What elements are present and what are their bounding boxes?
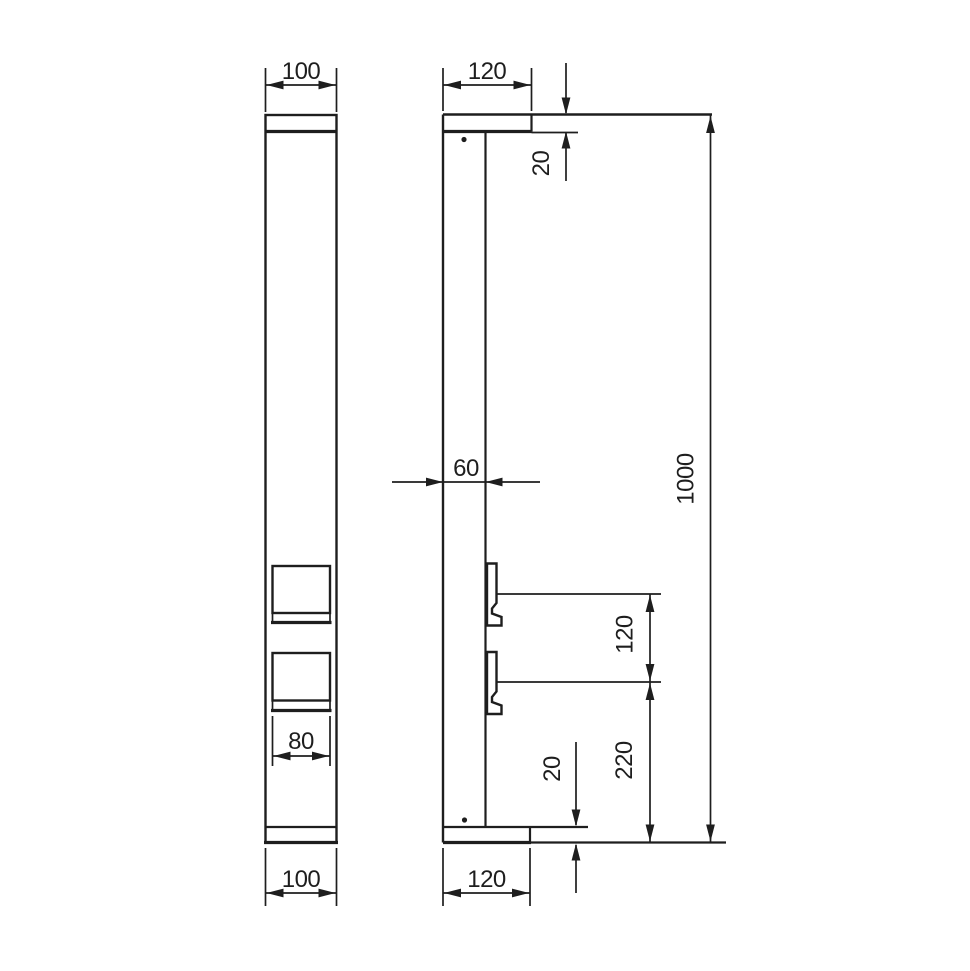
dim-label-lower-socket-height: 220 (611, 741, 638, 780)
arrowhead-up (646, 595, 655, 612)
arrowhead-up (706, 116, 715, 133)
dim-label-body-depth: 60 (453, 455, 479, 482)
front-upper-socket-skirt-sides (273, 613, 331, 621)
arrowhead-right (426, 478, 443, 487)
cap-screw-hole-dot (461, 137, 466, 142)
dim-label-base-thickness: 20 (539, 756, 566, 782)
dim-total-height: 1000 (673, 115, 715, 843)
dim-label-front-socket-width: 80 (288, 728, 314, 755)
dim-socket-spacing: 120 (497, 594, 662, 682)
dim-lower-socket-height: 220 (611, 682, 654, 842)
dim-label-total-height: 1000 (673, 453, 700, 505)
arrowhead-up (562, 132, 571, 149)
dim-front-socket-width: 80 (273, 716, 331, 766)
dim-label-cap-thickness: 20 (528, 151, 555, 177)
front-lower-socket (273, 653, 331, 701)
arrowhead-right (319, 81, 336, 90)
dim-label-side-bottom-width: 120 (467, 866, 506, 893)
front-lower-socket-skirt-sides (273, 701, 331, 710)
arrowhead-down (562, 98, 571, 115)
dim-side-top-width: 120 (443, 58, 532, 111)
arrowhead-left (486, 478, 503, 487)
arrowhead-up (646, 683, 655, 700)
arrowhead-right (312, 752, 329, 761)
dim-label-front-top-width: 100 (282, 58, 321, 85)
front-upper-socket (273, 566, 331, 613)
arrowhead-left (444, 889, 461, 898)
arrowhead-right (512, 889, 529, 898)
technical-drawing-canvas: 100 80 100 120 20 60 (0, 0, 970, 971)
arrowhead-down (706, 825, 715, 842)
dim-label-side-top-width: 120 (468, 58, 507, 85)
dim-front-top-width: 100 (266, 58, 337, 112)
drawing-page: 100 80 100 120 20 60 (0, 0, 970, 971)
arrowhead-right (319, 889, 336, 898)
dim-label-socket-spacing: 120 (612, 615, 639, 654)
dim-body-depth: 60 (392, 455, 540, 486)
dim-side-bottom-width: 120 (443, 848, 530, 906)
dim-front-bottom-width: 100 (266, 848, 337, 906)
arrowhead-right (514, 81, 531, 90)
dim-cap-thickness: 20 (528, 63, 570, 181)
dim-base-thickness: 20 (539, 742, 580, 893)
arrowhead-down (646, 825, 655, 842)
dim-label-front-bottom-width: 100 (282, 866, 321, 893)
arrowhead-up (572, 844, 581, 861)
side-lower-socket-profile (487, 652, 502, 714)
base-screw-hole-dot (462, 817, 467, 822)
arrowhead-down (572, 810, 581, 827)
arrowhead-left (444, 81, 461, 90)
arrowhead-down (646, 664, 655, 681)
